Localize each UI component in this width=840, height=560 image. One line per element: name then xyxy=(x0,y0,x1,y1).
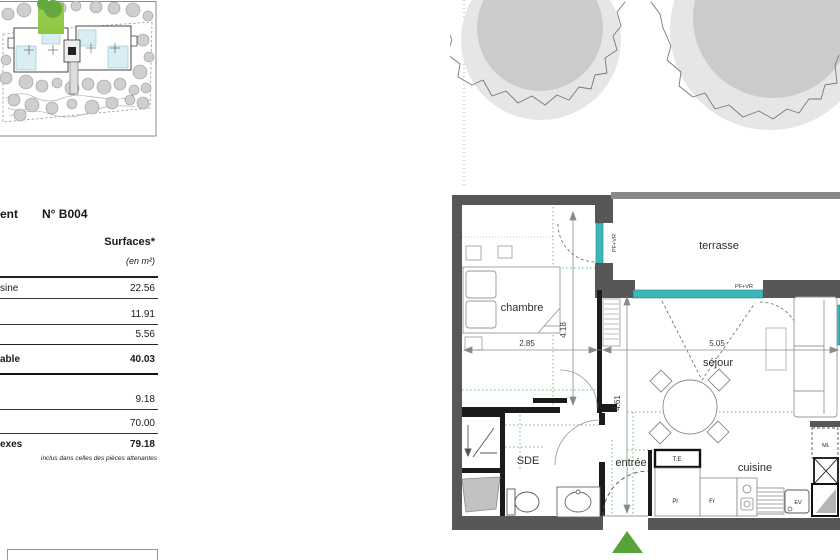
tree-icon xyxy=(450,0,625,120)
dim-sejour-width: 5.05 xyxy=(709,339,725,348)
table-rows: sine22.56 11.91 5.56 able40.03 9.18 70.0… xyxy=(0,276,158,457)
room-label-cuisine: cuisine xyxy=(738,462,772,474)
table-row-total: exes79.18 xyxy=(0,434,158,457)
title-fragment: ent xyxy=(0,207,18,221)
dim-chambre-width: 2.85 xyxy=(519,339,535,348)
entry-step xyxy=(462,477,500,512)
ev-label: EV xyxy=(794,500,802,506)
side-table-icon xyxy=(766,328,786,370)
site-highlighted-unit xyxy=(37,0,64,34)
bed-icon xyxy=(463,267,560,333)
sofa-icon xyxy=(794,297,837,417)
window-label-chambre: PF+VR xyxy=(612,234,618,252)
fr-label: Fr xyxy=(709,499,715,505)
radiator-icon xyxy=(603,299,620,346)
toilet-icon xyxy=(507,489,539,515)
dining-table-icon xyxy=(649,369,730,444)
room-label-terrasse: terrasse xyxy=(699,240,739,252)
tree-icon xyxy=(651,0,840,130)
floor-plan-sheet: entN° B004 Surfaces* (en m²) sine22.56 1… xyxy=(0,0,840,560)
table-row: 70.00 xyxy=(0,410,158,434)
room-label-sejour: séjour xyxy=(703,357,733,369)
room-label-entree: entrée xyxy=(615,457,646,469)
bottom-panel-edge xyxy=(7,549,158,560)
window-label-sejour: PF+VR xyxy=(735,284,753,290)
sink-icon xyxy=(557,487,600,517)
electrical-panel: T.E xyxy=(655,450,700,467)
kitchen-sink-icon: EV xyxy=(785,490,809,513)
washer-space: ML xyxy=(812,428,838,458)
duct-crossed-box xyxy=(814,458,838,484)
site-plan-thumbnail xyxy=(0,0,158,138)
table-row-subtotal: able40.03 xyxy=(0,345,158,375)
tree-canopies xyxy=(450,0,840,188)
table-row: 9.18 xyxy=(0,375,158,410)
table-row: 5.56 xyxy=(0,325,158,345)
table-title: entN° B004 xyxy=(0,207,88,221)
table-row: sine22.56 xyxy=(0,278,158,299)
fridge-icon: Fr xyxy=(700,478,737,516)
oven-icon xyxy=(737,478,757,516)
dim-chambre-depth: 4.18 xyxy=(559,322,568,338)
dim-sejour-depth: 4.61 xyxy=(613,395,622,411)
table-footnote: inclus dans celles des pièces attenantes xyxy=(0,455,157,462)
column-header: Surfaces* xyxy=(104,236,155,248)
cooktop-icon xyxy=(757,488,784,514)
room-label-sde: SDE xyxy=(517,455,540,467)
closet-unit: Pl xyxy=(655,468,700,516)
pl-label: Pl xyxy=(672,499,677,505)
floor-plan: T.E Pl Fr EV xyxy=(450,188,840,560)
corner-block xyxy=(812,484,838,516)
exterior-walls xyxy=(452,192,840,530)
te-label: T.E xyxy=(673,457,682,463)
column-subheader: (en m²) xyxy=(126,256,155,266)
technical-shaft-icon xyxy=(465,425,497,457)
room-label-chambre: chambre xyxy=(501,302,544,314)
ml-label: ML xyxy=(822,443,830,449)
table-row: 11.91 xyxy=(0,299,158,325)
entrance-triangle-icon xyxy=(612,531,643,553)
unit-number: N° B004 xyxy=(42,207,88,221)
